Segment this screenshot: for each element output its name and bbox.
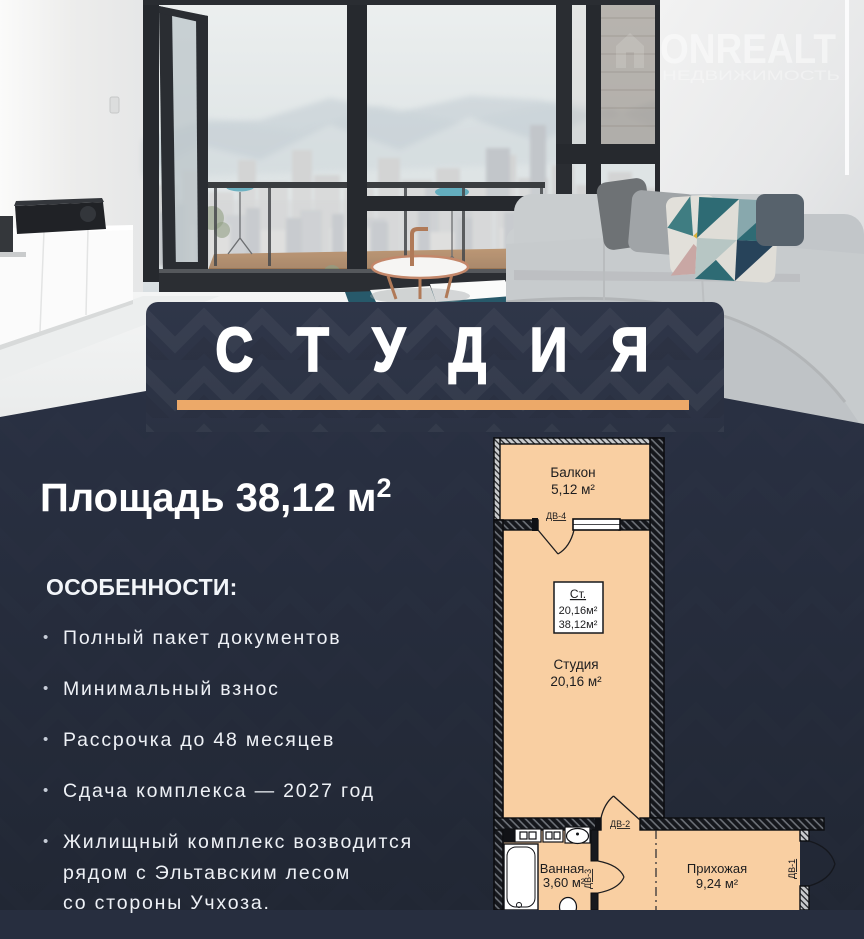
- svg-text:Ванная: Ванная: [540, 861, 585, 876]
- svg-text:С Т У Д И Я: С Т У Д И Я: [215, 316, 649, 385]
- svg-text:3,60 м²: 3,60 м²: [543, 875, 586, 890]
- svg-text:20,16 м²: 20,16 м²: [550, 674, 602, 689]
- svg-text:ONREALT: ONREALT: [660, 25, 836, 72]
- svg-text:Прихожая: Прихожая: [687, 861, 747, 876]
- svg-text:9,24 м²: 9,24 м²: [696, 876, 739, 891]
- svg-text:Ст.: Ст.: [570, 587, 586, 601]
- svg-text:ДВ-4: ДВ-4: [546, 511, 566, 521]
- svg-text:ДВ-1: ДВ-1: [787, 859, 797, 879]
- svg-text:5,12 м²: 5,12 м²: [551, 482, 595, 497]
- svg-text:ДВ-2: ДВ-2: [610, 819, 630, 829]
- svg-text:20,16м²: 20,16м²: [559, 605, 598, 617]
- svg-text:НЕДВИЖИМОСТЬ: НЕДВИЖИМОСТЬ: [662, 67, 840, 83]
- svg-text:Студия: Студия: [553, 657, 598, 672]
- svg-text:38,12м²: 38,12м²: [559, 619, 598, 631]
- svg-text:Балкон: Балкон: [550, 465, 595, 480]
